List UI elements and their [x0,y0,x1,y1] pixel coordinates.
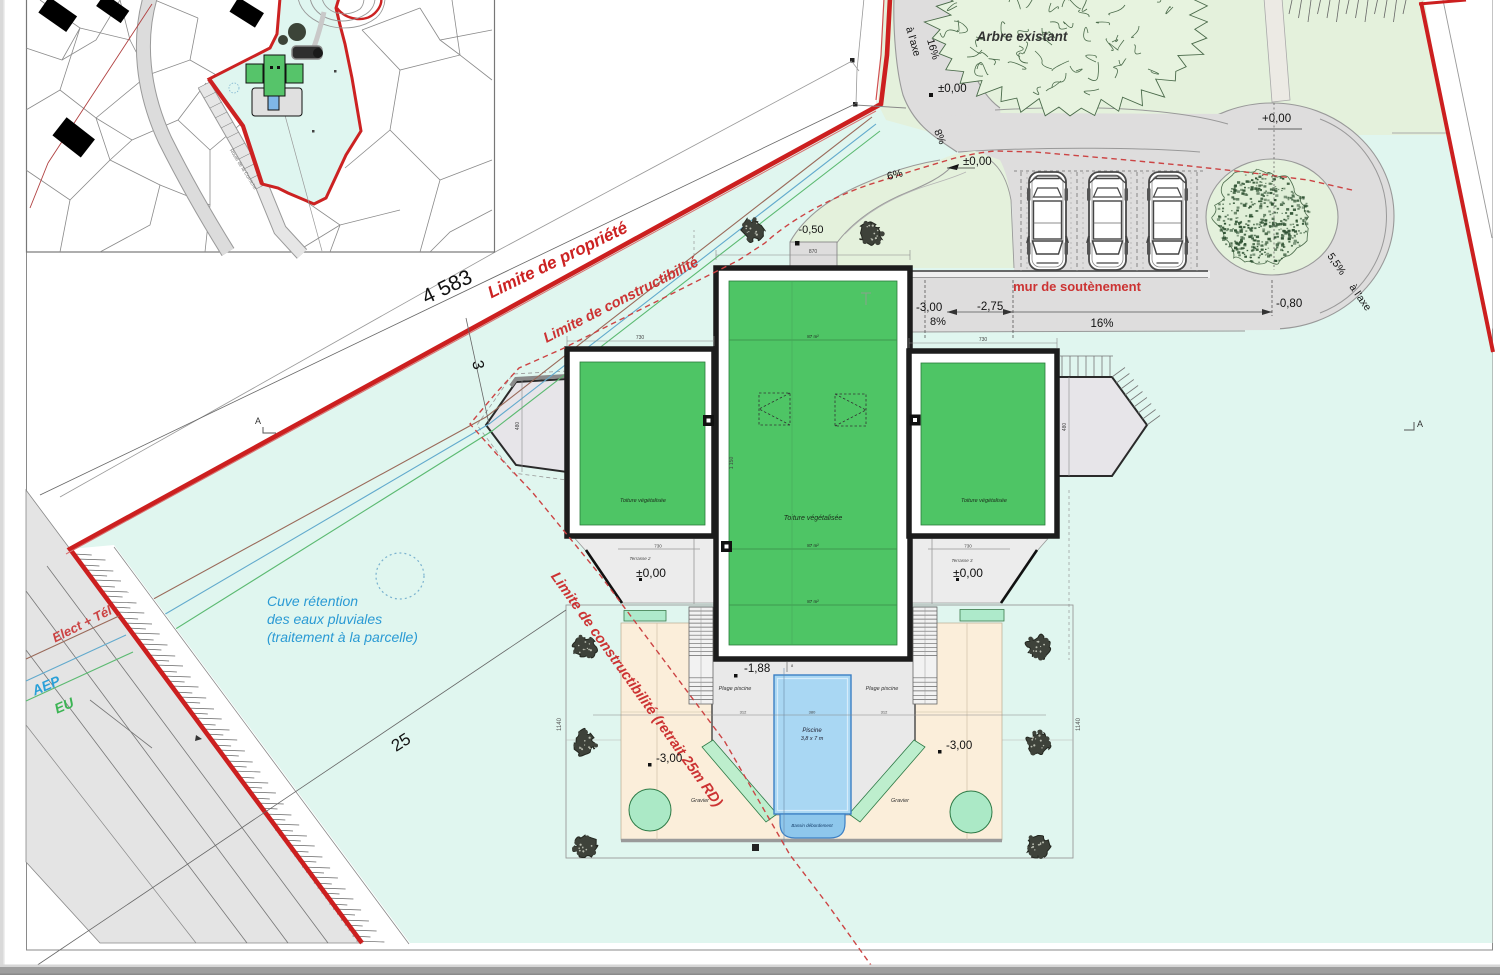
svg-text:A: A [255,416,261,426]
svg-text:1 150: 1 150 [729,457,735,470]
svg-text:Terrasse 3: Terrasse 3 [951,558,973,563]
svg-text:-3,00: -3,00 [656,753,682,765]
svg-text:Terrasse 2: Terrasse 2 [629,556,651,561]
svg-text:87 m²: 87 m² [807,599,819,604]
svg-text:87 m²: 87 m² [807,543,819,548]
svg-text:±0,00: ±0,00 [636,566,666,580]
svg-text:-3,00: -3,00 [946,740,972,752]
svg-text:312: 312 [740,710,747,715]
svg-text:(traitement à la parcelle): (traitement à la parcelle) [267,629,418,645]
svg-text:A: A [1417,419,1423,429]
svg-text:730: 730 [636,335,645,341]
svg-text:Plage piscine: Plage piscine [719,686,752,692]
svg-text:Plage piscine: Plage piscine [866,686,899,692]
svg-text:Bassin débordement: Bassin débordement [791,823,833,828]
svg-text:Toiture végétalisée: Toiture végétalisée [961,498,1007,504]
svg-text:±0,00: ±0,00 [953,566,983,580]
svg-text:Gravier: Gravier [691,798,710,804]
svg-text:Cuve rétention: Cuve rétention [267,593,358,609]
svg-text:Arbre existant: Arbre existant [976,29,1068,44]
svg-text:870: 870 [809,249,818,255]
svg-text:Toiture végétalisée: Toiture végétalisée [620,498,666,504]
svg-text:730: 730 [979,337,988,343]
svg-text:730: 730 [654,544,662,549]
svg-text:1140: 1140 [557,717,563,731]
svg-text:Piscine: Piscine [802,728,822,734]
svg-text:3,8 x 7 m: 3,8 x 7 m [801,736,824,742]
svg-text:±0,00: ±0,00 [938,83,967,95]
svg-text:mur de soutènement: mur de soutènement [1013,279,1142,294]
svg-text:16%: 16% [1090,318,1113,330]
svg-text:±0,00: ±0,00 [963,156,992,168]
svg-text:Gravier: Gravier [891,798,910,804]
svg-text:-1,88: -1,88 [744,663,770,675]
svg-text:des eaux pluviales: des eaux pluviales [267,611,382,627]
svg-text:8%: 8% [930,316,946,328]
svg-text:+0,00: +0,00 [1262,113,1291,125]
svg-text:-0,80: -0,80 [1276,298,1302,310]
svg-text:-3,00: -3,00 [916,302,942,314]
svg-text:480: 480 [1062,423,1068,432]
svg-text:Toiture végétalisée: Toiture végétalisée [784,515,843,522]
svg-text:-2,75: -2,75 [977,301,1003,313]
svg-text:730: 730 [964,544,972,549]
svg-text:312: 312 [881,710,888,715]
svg-text:1140: 1140 [1076,717,1082,731]
svg-text:-0,50: -0,50 [798,224,823,236]
svg-text:380: 380 [809,710,816,715]
svg-text:480: 480 [515,422,521,431]
svg-text:87 m²: 87 m² [807,334,819,339]
